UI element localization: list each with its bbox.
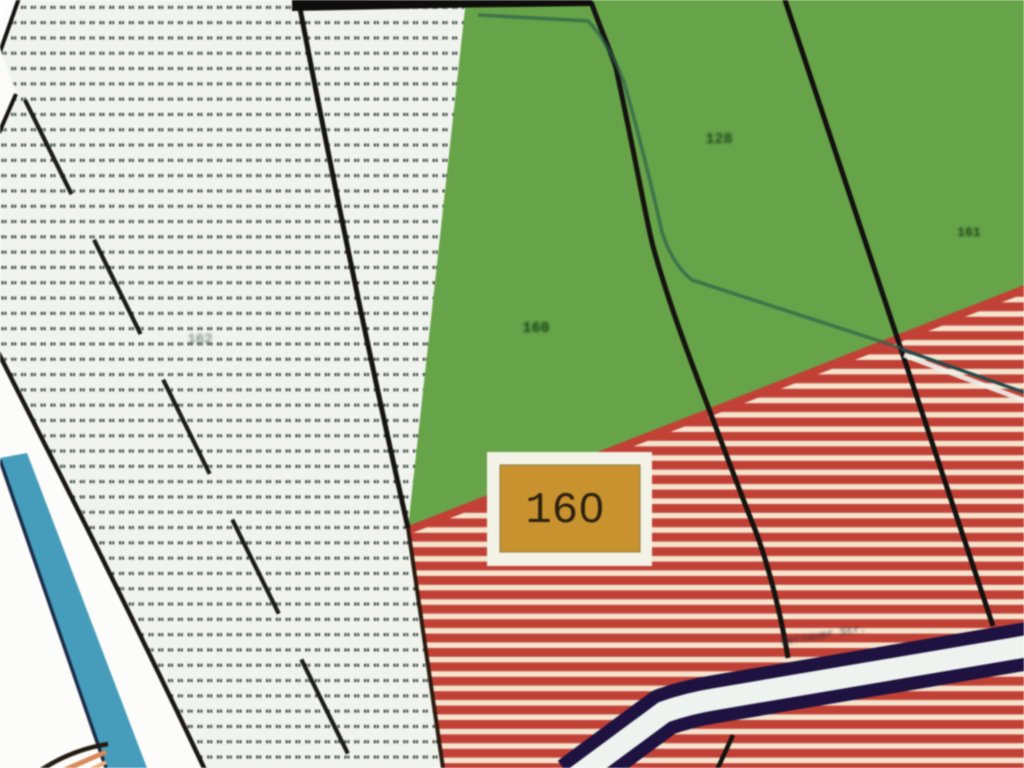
svg-text:161: 161 [957, 225, 981, 240]
svg-text:128: 128 [705, 131, 732, 148]
svg-text:160: 160 [522, 320, 549, 337]
svg-text:162: 162 [187, 332, 212, 348]
